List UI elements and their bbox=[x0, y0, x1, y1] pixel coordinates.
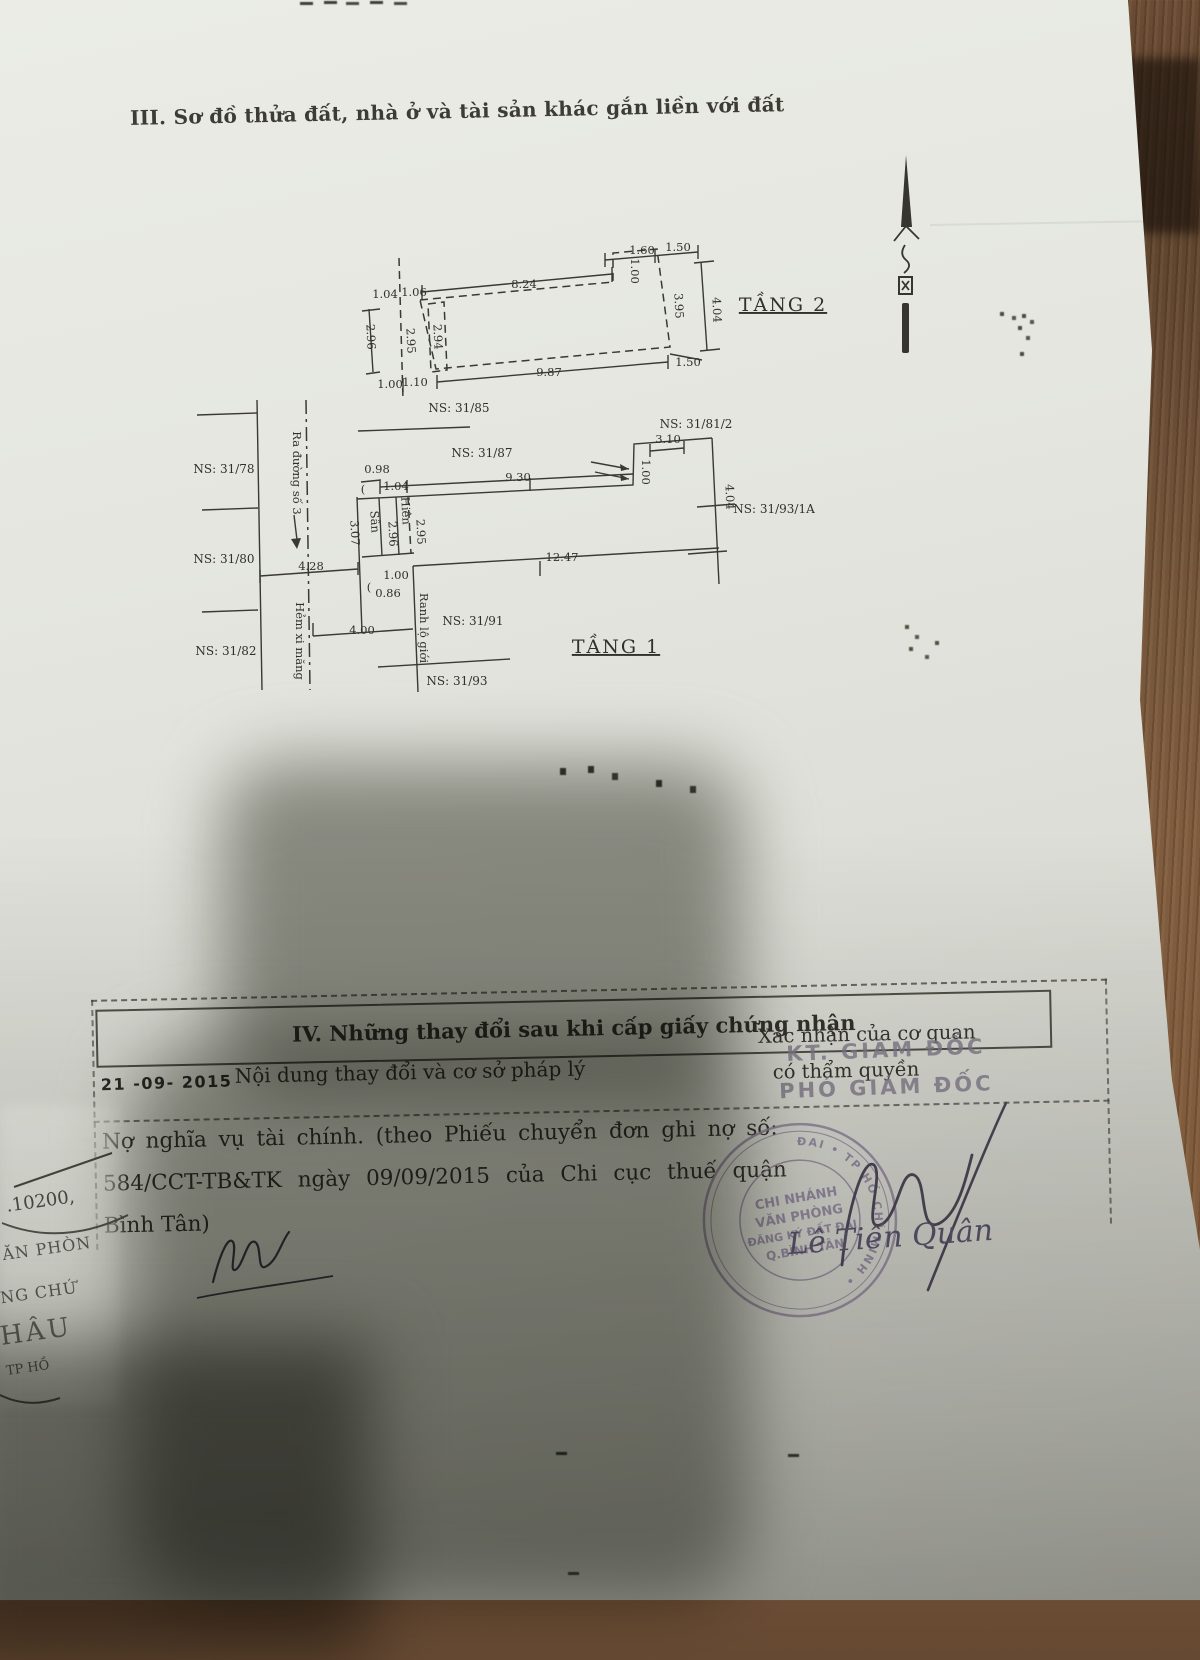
neighbor-parcel-label: NS: 31/81/2 bbox=[660, 417, 733, 431]
dimension-label: 1.60 bbox=[629, 243, 655, 257]
debt-note-line1: Nợ nghĩa vụ tài chính. (theo Phiếu chuyể… bbox=[102, 1116, 778, 1155]
underlying-page-fragment: .10200, ĂN PHÒN NG CHỨ HÂU TP HỒ bbox=[0, 1095, 150, 1425]
dimension-label: 1.04 bbox=[372, 287, 398, 301]
dimension-label: 1.00 bbox=[639, 459, 653, 485]
diagram-labels: 1.601.508.241.003.954.041.509.871.041.06… bbox=[193, 240, 827, 688]
north-arrow-icon bbox=[893, 155, 923, 360]
neighbor-parcel-label: NS: 31/93/1A bbox=[733, 502, 815, 516]
debt-note-line2: 584/CCT-TB&TK ngày 09/09/2015 của Chi cụ… bbox=[103, 1157, 787, 1196]
dimension-label: 9.87 bbox=[536, 365, 562, 379]
dimension-label: ( bbox=[361, 482, 366, 496]
cadastral-diagram: 1.601.508.241.003.954.041.509.871.041.06… bbox=[150, 210, 990, 710]
dimension-label: 2.96 bbox=[363, 324, 378, 350]
dimension-label: 2.94 bbox=[430, 324, 445, 350]
dimension-label: 0.98 bbox=[364, 462, 390, 476]
floor-label: TẦNG 2 bbox=[739, 291, 827, 316]
dimension-label: Ra đường số 3 bbox=[290, 431, 304, 514]
dimension-label: 2.95 bbox=[413, 519, 428, 545]
toner-specks bbox=[560, 768, 566, 775]
section3-title: III. Sơ đồ thửa đất, nhà ở và tài sản kh… bbox=[130, 92, 785, 130]
dimension-label: 9.30 bbox=[505, 470, 531, 484]
dimension-label: 1.00 bbox=[383, 568, 409, 582]
dimension-label: Ranh lộ giới bbox=[417, 593, 431, 663]
neighbor-parcel-label: NS: 31/78 bbox=[193, 462, 254, 476]
neighbor-parcel-label: NS: 31/80 bbox=[193, 552, 254, 566]
floor-label: TẦNG 1 bbox=[572, 633, 660, 658]
dimension-label: 1.00 bbox=[377, 377, 403, 391]
seal-ring-text: VĂN PHÒNG ĐĂNG KÝ ĐẤT ĐAI • TP HỒ CHÍ MI… bbox=[682, 1102, 898, 1314]
document-page: III. Sơ đồ thửa đất, nhà ở và tài sản kh… bbox=[0, 0, 1200, 1600]
dimension-label: 3.95 bbox=[671, 293, 686, 319]
photo-of-land-certificate: { "colors":{"paper":"#e4e5df","wood":"#7… bbox=[0, 0, 1200, 1600]
date-stamp: 21 -09- 2015 bbox=[101, 1071, 233, 1094]
dimension-label: 2.95 bbox=[403, 328, 418, 354]
svg-text:VĂN PHÒNG ĐĂNG KÝ ĐẤT ĐAI • TP: VĂN PHÒNG ĐĂNG KÝ ĐẤT ĐAI • TP HỒ CHÍ MI… bbox=[682, 1102, 898, 1314]
dimension-label: 1.04 bbox=[383, 479, 409, 493]
dimension-label: 4.28 bbox=[298, 559, 324, 573]
dimension-label: 4.04 bbox=[710, 297, 725, 323]
dimension-label: Sân bbox=[367, 510, 382, 533]
dimension-label: 1.50 bbox=[665, 240, 691, 254]
toner-specks bbox=[1000, 312, 1004, 316]
dimension-label: 1.10 bbox=[402, 375, 428, 389]
neighbor-parcel-label: NS: 31/91 bbox=[442, 614, 503, 628]
dimension-label: 3.07 bbox=[347, 520, 362, 546]
dimension-label: ( bbox=[367, 580, 372, 594]
neighbor-parcel-label: NS: 31/93 bbox=[426, 674, 487, 688]
neighbor-parcel-label: NS: 31/87 bbox=[451, 446, 512, 460]
neighbor-parcel-label: NS: 31/82 bbox=[195, 644, 256, 658]
dimension-label: 1.06 bbox=[401, 285, 427, 299]
dimension-label: 1.50 bbox=[675, 355, 701, 369]
cutoff-text-marks bbox=[300, 2, 313, 5]
dimension-label: 3.10 bbox=[655, 432, 681, 446]
dimension-label: 1.00 bbox=[628, 258, 642, 284]
toner-specks bbox=[905, 625, 909, 629]
dimension-label: 0.86 bbox=[375, 586, 401, 600]
neighbor-parcel-label: NS: 31/85 bbox=[428, 401, 489, 415]
dimension-label: 4.00 bbox=[349, 623, 375, 637]
dimension-label: 8.24 bbox=[511, 277, 537, 291]
toner-specks bbox=[556, 1452, 567, 1455]
dimension-label: 2.96 bbox=[385, 521, 400, 547]
dimension-label: 12.47 bbox=[546, 550, 579, 564]
dimension-label: Hiên bbox=[398, 496, 413, 525]
dimension-label: Hẻm xi măng bbox=[293, 602, 307, 680]
